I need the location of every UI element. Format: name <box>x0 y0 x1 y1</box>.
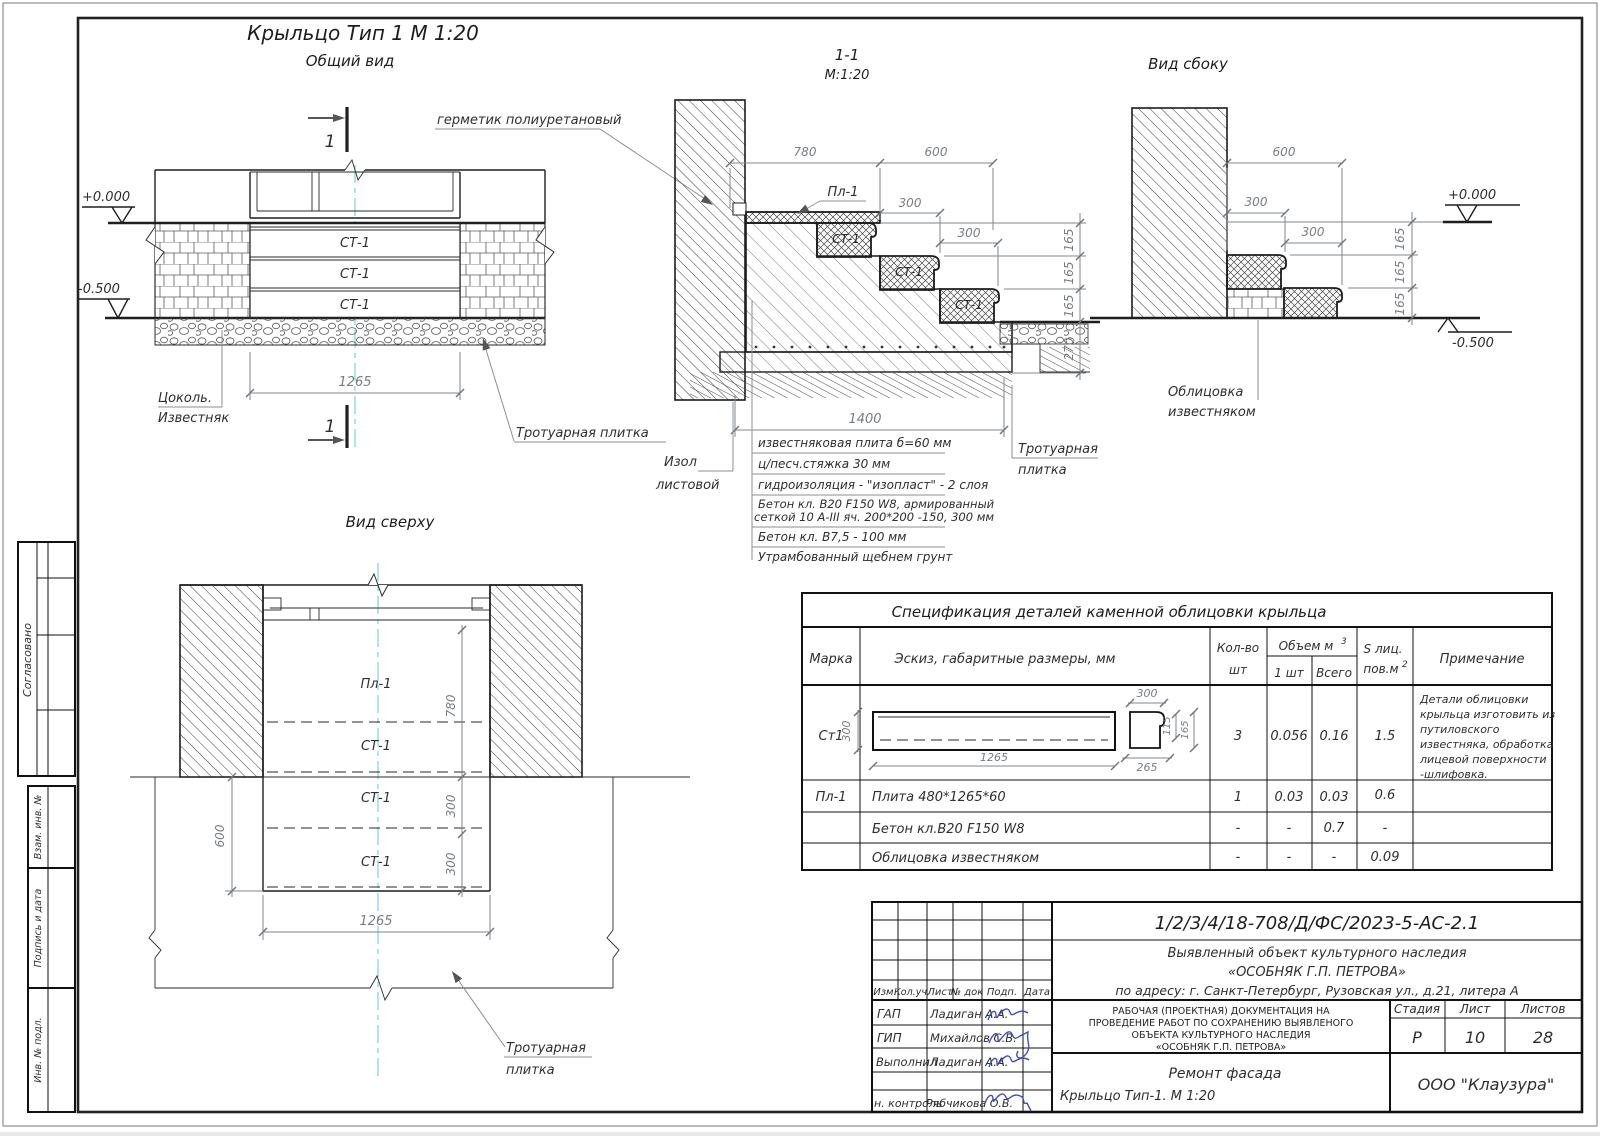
general-view-dimensions: 1265 <box>246 352 464 400</box>
spec-table: Спецификация деталей каменной облицовки … <box>802 593 1555 870</box>
section-geometry <box>675 100 1100 400</box>
sheets-value: 28 <box>1533 1028 1553 1047</box>
row-st1-s: 1.5 <box>1375 729 1396 744</box>
col-ndok: № док <box>950 987 984 998</box>
section-cut-mark-bottom: 1 <box>308 405 347 448</box>
dim-600: 600 <box>1273 145 1296 159</box>
label-izol-line1: Изол <box>664 455 697 470</box>
label-izol: Изол листовой <box>655 402 733 493</box>
row-facing-qty: - <box>1236 850 1241 865</box>
top-view: Вид сверху <box>130 513 690 1080</box>
note-line: путиловского <box>1420 723 1500 736</box>
label-tsokol-line1: Цоколь. <box>158 391 212 406</box>
label-pavement-text: Тротуарная плитка <box>516 426 649 441</box>
role-vypolnil: Выполнил <box>876 1055 938 1069</box>
section-cut-mark-top: 1 <box>308 107 347 152</box>
col-volume-sup: 3 <box>1341 637 1347 647</box>
dim-300: 300 <box>840 721 853 742</box>
row-concrete-qty: - <box>1236 821 1241 836</box>
label-pavement-top: Тротуарная плитка <box>449 969 592 1078</box>
col-qty: шт <box>1229 663 1248 677</box>
stamp-inv-label: Инв. № подл. <box>33 1017 44 1083</box>
stamp-soglasovano-label: Согласовано <box>21 623 34 697</box>
object-line2: «ОСОБНЯК Г.П. ПЕТРОВА» <box>1228 965 1406 980</box>
layer-note: Бетон кл. В7,5 - 100 мм <box>758 530 906 544</box>
section-mark-number: 1 <box>325 417 336 437</box>
row-st1-vol-one: 0.056 <box>1270 729 1307 744</box>
label-pavement-line2: плитка <box>506 1063 555 1078</box>
drawing-sheet: Согласовано Взам. инв. № Подпись и дата … <box>0 0 1600 1132</box>
general-view-title: Крыльцо Тип 1 М 1:20 <box>247 21 479 45</box>
role-gap: ГАП <box>877 1007 901 1021</box>
label-pavement-line1: Тротуарная <box>1018 442 1098 457</box>
label-pavement-line1: Тротуарная <box>506 1041 586 1056</box>
dim-300: 300 <box>1302 225 1325 239</box>
doc-desc-line4: «ОСОБНЯК Г.П. ПЕТРОВА» <box>1156 1042 1287 1053</box>
name-ryabchikova: Рябчикова О.В. <box>926 1097 1013 1110</box>
label-sealant: герметик полиуретановый <box>435 113 715 208</box>
dim-300: 300 <box>444 852 458 875</box>
stamp-podpis-label: Подпись и дата <box>33 888 44 967</box>
doc-desc-line1: РАБОЧАЯ (ПРОЕКТНАЯ) ДОКУМЕНТАЦИЯ НА <box>1112 1006 1330 1017</box>
label-pavement-line2: плитка <box>1018 463 1067 478</box>
elevation-mark-zero: +0.000 <box>82 190 135 223</box>
layer-note: Утрамбованный щебнем грунт <box>758 550 953 564</box>
company-name: ООО "Клаузура" <box>1418 1075 1554 1094</box>
side-view-title: Вид сбоку <box>1148 55 1229 73</box>
dim-780: 780 <box>794 145 817 159</box>
row-concrete-desc: Бетон кл.В20 F150 W8 <box>872 822 1025 837</box>
col-s: пов.м <box>1363 662 1398 676</box>
subject-line2: Крыльцо Тип-1. М 1:20 <box>1060 1089 1215 1104</box>
row-pl1-s: 0.6 <box>1375 788 1396 803</box>
row-pl1-vol-one: 0.03 <box>1275 790 1304 805</box>
side-view: Вид сбоку 600 300 300 165 <box>1090 55 1520 420</box>
step-mark: СТ-1 <box>340 298 370 313</box>
dim-270: 270 <box>1062 337 1076 360</box>
row-pl1-desc: Плита 480*1265*60 <box>872 790 1006 805</box>
row-st1-qty: 3 <box>1234 729 1242 744</box>
sheet-label: Лист <box>1459 1002 1491 1016</box>
note-line: известняка, обработка <box>1420 738 1554 751</box>
col-volume: Объем м <box>1279 639 1334 653</box>
layer-note: известняковая плита б=60 мм <box>758 436 951 450</box>
name-mikhailov: Михайлов С.В. <box>930 1031 1017 1045</box>
layer-note: ц/песч.стяжка 30 мм <box>758 457 890 471</box>
col-qty: Кол-во <box>1217 641 1259 655</box>
layer-note: Бетон кл. В20 F150 W8, армированный <box>758 497 995 511</box>
row-pl1-marka: Пл-1 <box>815 790 846 805</box>
dim-165: 165 <box>1393 293 1407 316</box>
section-mark-number: 1 <box>325 132 336 152</box>
section-view: 1-1 М:1:20 <box>655 46 1100 564</box>
title-block: Изм. Кол.уч. Лист № док Подп. Дата ГАП Г… <box>872 902 1582 1112</box>
label-sealant-text: герметик полиуретановый <box>437 113 621 128</box>
dim-165: 165 <box>1393 261 1407 284</box>
dim-1265: 1265 <box>359 914 392 929</box>
dim-600: 600 <box>213 824 227 847</box>
dim-300: 300 <box>958 226 981 240</box>
sheets-label: Листов <box>1520 1002 1566 1016</box>
label-oblitsovka: Облицовка известняком <box>1168 320 1258 420</box>
spec-table-title: Спецификация деталей каменной облицовки … <box>892 603 1327 621</box>
plate-mark: Пл-1 <box>360 677 391 692</box>
step-mark: СТ-1 <box>955 298 983 312</box>
dim-165: 165 <box>1062 229 1076 252</box>
doc-desc-line2: ПРОВЕДЕНИЕ РАБОТ ПО СОХРАНЕНИЮ ВЫЯВЛЕНОГ… <box>1089 1018 1354 1029</box>
row-concrete-vol-one: - <box>1287 821 1292 836</box>
dim-1400: 1400 <box>848 412 881 427</box>
dim-165: 165 <box>1062 262 1076 285</box>
side-elevation-zero: +0.000 <box>1443 188 1520 222</box>
label-tsokol-line2: Известняк <box>158 411 229 426</box>
dim-1265: 1265 <box>980 751 1008 764</box>
elevation-value: +0.000 <box>82 190 130 205</box>
dim-300: 300 <box>899 196 922 210</box>
stamp-vzam-label: Взам. инв. № <box>33 795 44 860</box>
row-facing-vol-total: - <box>1332 850 1337 865</box>
label-pavement-section: Тротуарная плитка <box>1012 385 1098 478</box>
step-mark: СТ-1 <box>340 267 370 282</box>
row-pl1-qty: 1 <box>1234 790 1242 805</box>
dim-165: 165 <box>1393 228 1407 251</box>
step-mark: СТ-1 <box>361 855 391 870</box>
col-one-pc: 1 шт <box>1274 666 1304 680</box>
object-line1: Выявленный объект культурного наследия <box>1167 946 1466 961</box>
side-elevation-minus: -0.500 <box>1438 318 1512 351</box>
note-line: лицевой поверхности <box>1419 753 1546 766</box>
col-data: Дата <box>1023 987 1050 998</box>
top-view-geometry <box>130 574 690 1000</box>
dim-265: 265 <box>1137 761 1158 774</box>
general-view-subtitle: Общий вид <box>306 52 394 70</box>
note-line: крыльца изготовить из <box>1420 708 1555 721</box>
top-view-title: Вид сверху <box>346 513 436 531</box>
dim-165: 165 <box>1062 295 1076 318</box>
row-facing-vol-one: - <box>1287 850 1292 865</box>
layer-note: сеткой 10 А-III яч. 200*200 -150, 300 мм <box>754 510 994 524</box>
elevation-value: +0.000 <box>1448 188 1496 203</box>
elevation-value: -0.500 <box>78 282 120 297</box>
row-concrete-s: - <box>1383 821 1388 836</box>
elevation-mark-minus: -0.500 <box>78 282 130 318</box>
section-title: 1-1 <box>835 46 860 64</box>
row-facing-desc: Облицовка известняком <box>872 851 1039 866</box>
step-mark: СТ-1 <box>340 236 370 251</box>
step-mark: СТ-1 <box>832 232 860 246</box>
doc-number: 1/2/3/4/18-708/Д/ФС/2023-5-АС-2.1 <box>1155 913 1479 934</box>
col-s-sup: 2 <box>1402 660 1408 670</box>
dim-780: 780 <box>444 694 458 717</box>
col-s: S лиц. <box>1364 642 1403 656</box>
left-stamp: Согласовано Взам. инв. № Подпись и дата … <box>18 542 75 1112</box>
row-concrete-vol-total: 0.7 <box>1324 821 1345 836</box>
dim-115: 115 <box>1162 716 1173 735</box>
note-line: -шлифовка. <box>1420 768 1488 781</box>
step-mark: СТ-1 <box>361 739 391 754</box>
elevation-value: -0.500 <box>1452 336 1494 351</box>
label-oblitsovka-line2: известняком <box>1168 405 1256 420</box>
role-gip: ГИП <box>877 1031 902 1045</box>
col-sketch: Эскиз, габаритные размеры, мм <box>894 652 1116 667</box>
stage-label: Стадия <box>1394 1002 1440 1016</box>
st1-sketch: 300 1265 300 115 165 265 <box>840 687 1198 774</box>
step-mark: СТ-1 <box>895 265 923 279</box>
dim-165: 165 <box>1180 720 1191 739</box>
object-line3: по адресу: г. Санкт-Петербург, Рузовская… <box>1115 983 1518 998</box>
label-oblitsovka-line1: Облицовка <box>1168 385 1243 400</box>
note-line: Детали облицовки <box>1419 693 1528 706</box>
col-koluch: Кол.уч. <box>894 987 930 998</box>
plate-mark: Пл-1 <box>827 185 858 200</box>
dim-300: 300 <box>1245 195 1268 209</box>
label-izol-line2: листовой <box>655 478 720 493</box>
dim-600: 600 <box>925 145 948 159</box>
col-podp: Подп. <box>987 987 1017 998</box>
sheet-value: 10 <box>1465 1028 1485 1047</box>
stage-value: Р <box>1412 1028 1422 1047</box>
cad-drawing: Согласовано Взам. инв. № Подпись и дата … <box>0 0 1600 1132</box>
col-marka: Марка <box>809 652 852 667</box>
dim-1265: 1265 <box>338 375 371 390</box>
general-view: Крыльцо Тип 1 М 1:20 Общий вид 1 1 <box>78 21 715 450</box>
row-facing-s: 0.09 <box>1371 850 1400 865</box>
row-st1-vol-total: 0.16 <box>1320 729 1349 744</box>
general-view-geometry <box>105 160 554 345</box>
doc-desc-line3: ОБЪЕКТА КУЛЬТУРНОГО НАСЛЕДИЯ <box>1132 1030 1311 1041</box>
dim-300: 300 <box>444 794 458 817</box>
col-note: Примечание <box>1440 652 1525 667</box>
dim-300: 300 <box>1137 687 1158 700</box>
layer-note: гидроизоляция - "изопласт" - 2 слоя <box>758 478 988 492</box>
subject-line1: Ремонт фасада <box>1168 1066 1281 1082</box>
label-pavement-general: Тротуарная плитка <box>479 337 666 442</box>
step-mark: СТ-1 <box>361 791 391 806</box>
row-pl1-vol-total: 0.03 <box>1320 790 1349 805</box>
section-scale: М:1:20 <box>825 68 870 83</box>
col-total: Всего <box>1316 666 1352 680</box>
st1-note: Детали облицовки крыльца изготовить из п… <box>1419 693 1555 781</box>
